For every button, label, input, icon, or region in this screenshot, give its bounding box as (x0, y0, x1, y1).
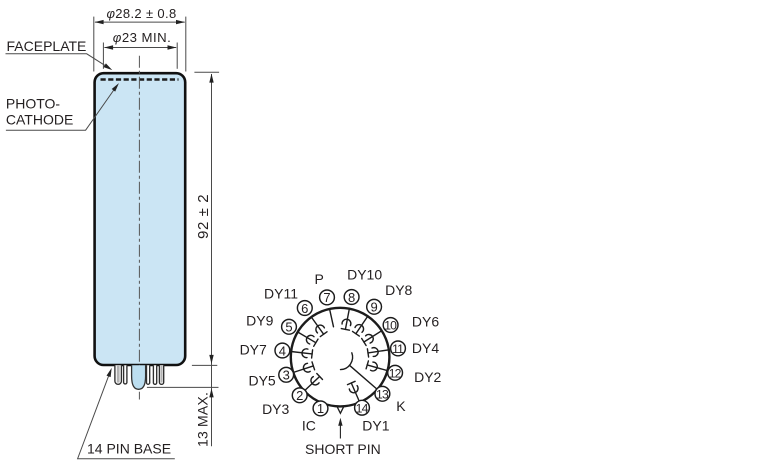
svg-text:7: 7 (323, 290, 330, 305)
svg-text:DY4: DY4 (412, 340, 439, 356)
svg-text:φ23 MIN.: φ23 MIN. (113, 30, 171, 45)
svg-text:DY10: DY10 (347, 267, 382, 283)
svg-text:DY7: DY7 (240, 341, 267, 357)
svg-text:5: 5 (285, 320, 292, 335)
svg-text:2: 2 (296, 388, 303, 403)
svg-text:φ28.2 ± 0.8: φ28.2 ± 0.8 (106, 6, 176, 21)
svg-text:14 PIN BASE: 14 PIN BASE (87, 441, 171, 457)
svg-text:FACEPLATE: FACEPLATE (7, 38, 87, 54)
svg-text:CATHODE: CATHODE (6, 111, 73, 127)
svg-text:K: K (396, 398, 406, 414)
svg-text:12: 12 (389, 366, 402, 380)
svg-text:10: 10 (384, 319, 397, 333)
svg-text:1: 1 (317, 401, 324, 416)
svg-text:9: 9 (370, 300, 377, 315)
svg-text:92 ± 2: 92 ± 2 (195, 194, 212, 239)
svg-text:P: P (315, 271, 324, 287)
svg-text:PHOTO-: PHOTO- (6, 95, 61, 111)
svg-text:3: 3 (283, 368, 290, 383)
svg-text:DY8: DY8 (385, 282, 412, 298)
svg-text:14: 14 (356, 401, 369, 415)
svg-text:11: 11 (392, 342, 404, 356)
svg-text:DY9: DY9 (246, 312, 273, 328)
svg-text:8: 8 (348, 290, 355, 305)
svg-text:DY3: DY3 (262, 401, 289, 417)
svg-text:DY6: DY6 (412, 313, 439, 329)
svg-text:DY1: DY1 (362, 418, 389, 434)
svg-text:DY2: DY2 (414, 369, 441, 385)
svg-text:IC: IC (302, 418, 316, 434)
svg-text:SHORT PIN: SHORT PIN (305, 441, 381, 457)
svg-text:6: 6 (301, 301, 308, 316)
svg-text:DY5: DY5 (248, 373, 275, 389)
svg-text:13 MAX.: 13 MAX. (194, 392, 210, 447)
svg-text:DY11: DY11 (264, 286, 298, 302)
svg-text:4: 4 (279, 343, 286, 358)
svg-text:13: 13 (376, 387, 389, 401)
